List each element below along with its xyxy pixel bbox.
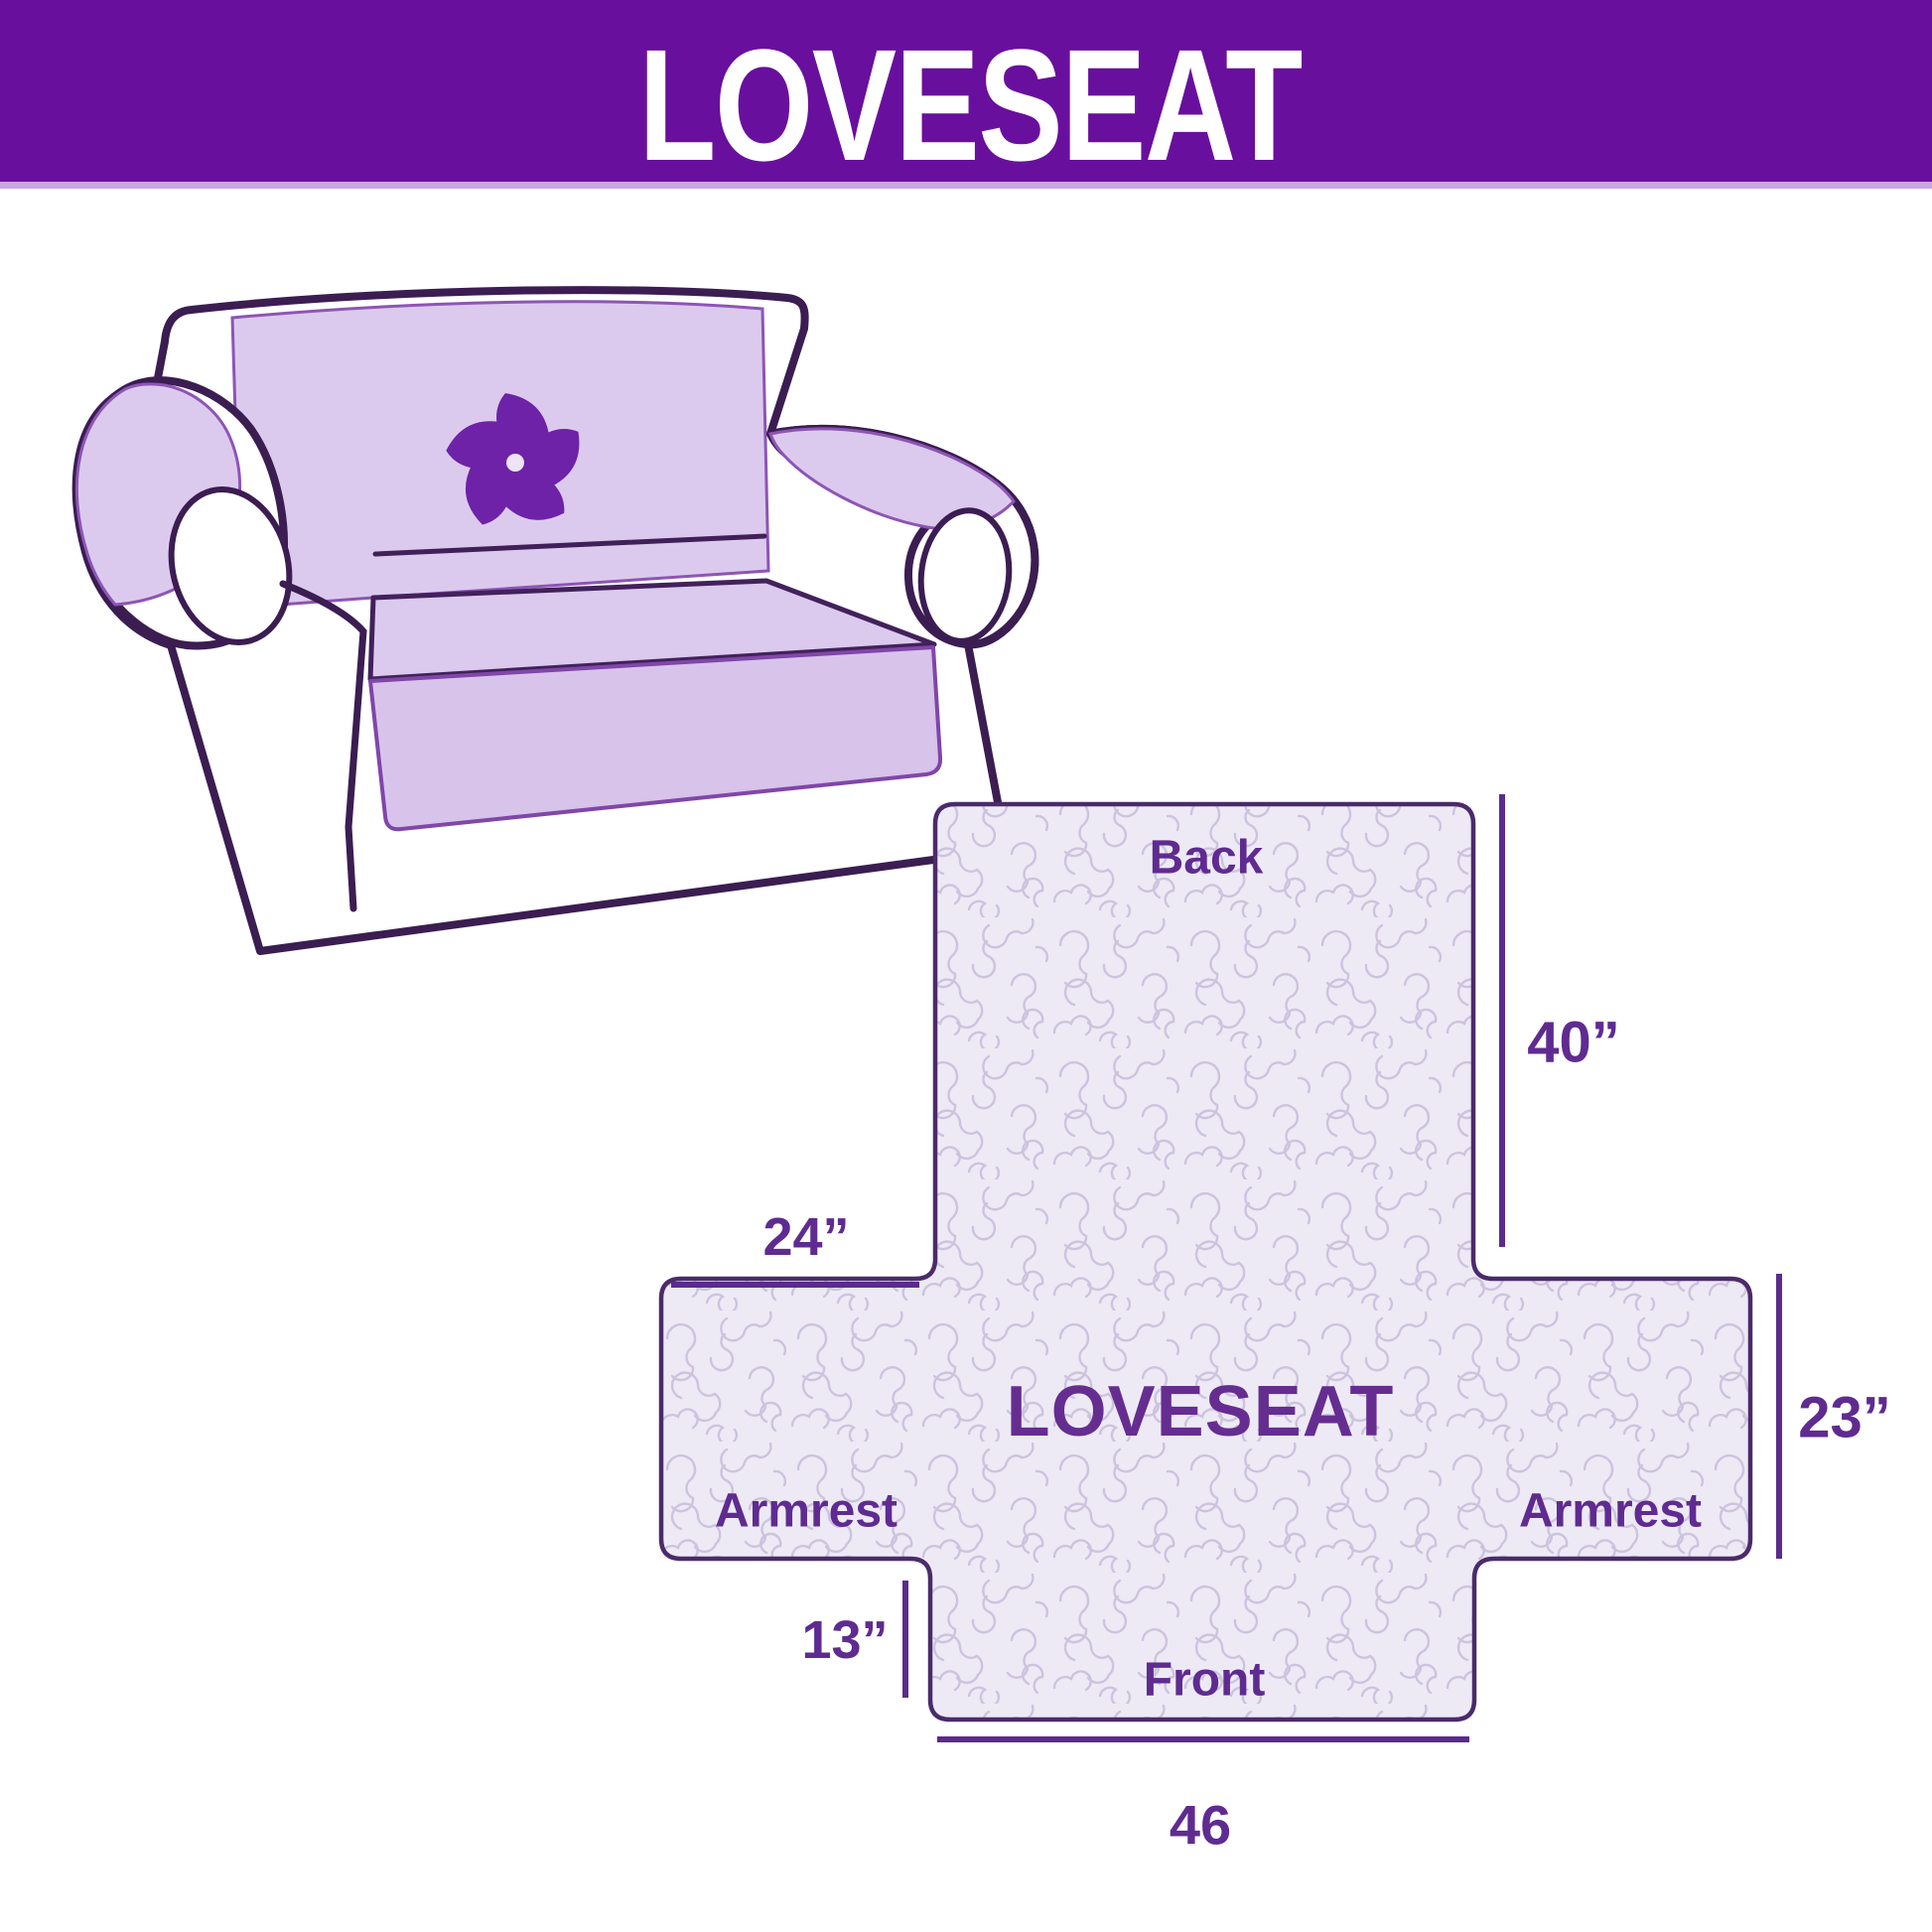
- dimension-front-width: 46: [1170, 1793, 1231, 1858]
- dimension-armrest-depth: 23”: [1798, 1385, 1891, 1451]
- dimension-armrest-left-width: 24”: [762, 1206, 849, 1268]
- diagram-label-back: Back: [1150, 831, 1264, 886]
- scene-graphics: [0, 0, 1932, 1932]
- sofa-illustration: [76, 290, 1035, 951]
- page-title: LOVESEAT: [638, 14, 1302, 197]
- diagram-label-front: Front: [1144, 1653, 1266, 1708]
- dimension-front-drop: 13”: [801, 1609, 888, 1671]
- dimension-back-height: 40”: [1527, 1010, 1620, 1076]
- infographic-page: LOVESEAT Back LOVESEAT Armrest Armrest F…: [0, 0, 1932, 1932]
- diagram-center-label: LOVESEAT: [1007, 1371, 1395, 1452]
- diagram-label-armrest-left: Armrest: [715, 1484, 897, 1539]
- diagram-label-armrest-right: Armrest: [1519, 1484, 1702, 1539]
